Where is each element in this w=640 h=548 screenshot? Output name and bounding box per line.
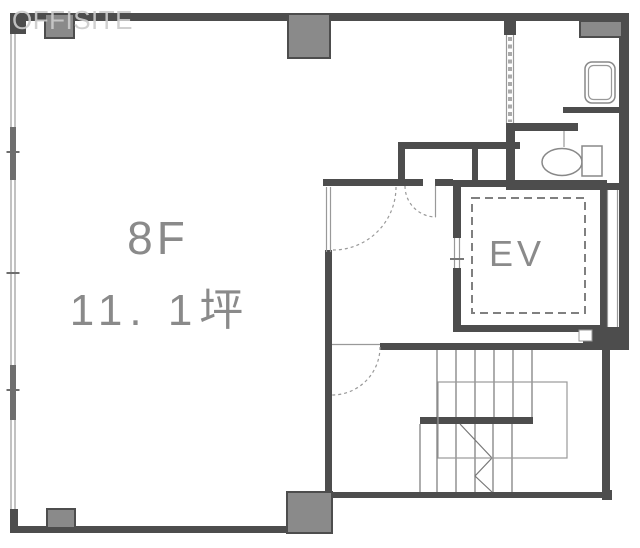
floor-plan: 8F 11. 1坪 EV OFFISITE — [0, 0, 640, 548]
ev-left-wall — [453, 187, 461, 238]
column — [47, 509, 75, 528]
mullion-tick — [7, 272, 20, 274]
hall-top-wall — [323, 179, 423, 186]
toilet-top-wall — [506, 123, 578, 131]
toilet-tank — [582, 146, 602, 176]
area-label: 11. 1坪 — [70, 286, 251, 335]
closet-divider — [472, 149, 478, 180]
column — [287, 492, 332, 533]
watermark-text: OFFISITE — [12, 5, 133, 35]
ev-right-wall — [600, 187, 607, 332]
toilet-left-wall — [506, 123, 515, 190]
doors — [327, 186, 437, 395]
door-swing-arc — [332, 347, 380, 395]
ev-door-tick — [450, 258, 464, 260]
wall-segment — [10, 127, 16, 180]
sink-room-wall — [563, 107, 629, 113]
dashed-partition — [507, 35, 514, 123]
right-wall-foot — [602, 490, 612, 500]
toilet-bowl — [542, 149, 582, 176]
mullion-tick — [7, 151, 20, 153]
right-wall — [619, 13, 629, 350]
fixtures — [542, 62, 615, 176]
window-wall-left — [7, 34, 20, 515]
main-room-right-wall — [325, 250, 332, 493]
door-swing-arc — [333, 187, 396, 250]
partition-head — [504, 13, 516, 35]
staircase — [420, 350, 567, 492]
floor-plan-drawing: 8F 11. 1坪 EV OFFISITE — [0, 0, 640, 548]
elevator-label: EV — [489, 233, 545, 274]
right-wall-stairs — [602, 350, 610, 498]
door-swing-arc — [405, 186, 436, 217]
stair-treads-upper — [437, 350, 532, 417]
floor-label: 8F — [127, 212, 189, 264]
bottom-wall-stairs — [287, 492, 612, 498]
mullion-tick — [7, 389, 20, 391]
ev-top-wall — [453, 180, 607, 187]
ev-left-wall — [453, 268, 461, 332]
shaft-notch — [579, 330, 592, 341]
closet-top-wall — [398, 142, 520, 149]
column — [288, 14, 330, 58]
hall-top-wall — [435, 179, 453, 186]
column — [580, 21, 622, 37]
stair-top-wall — [380, 343, 607, 350]
stair-landing-edge — [420, 417, 533, 424]
wall-segment — [10, 365, 16, 420]
